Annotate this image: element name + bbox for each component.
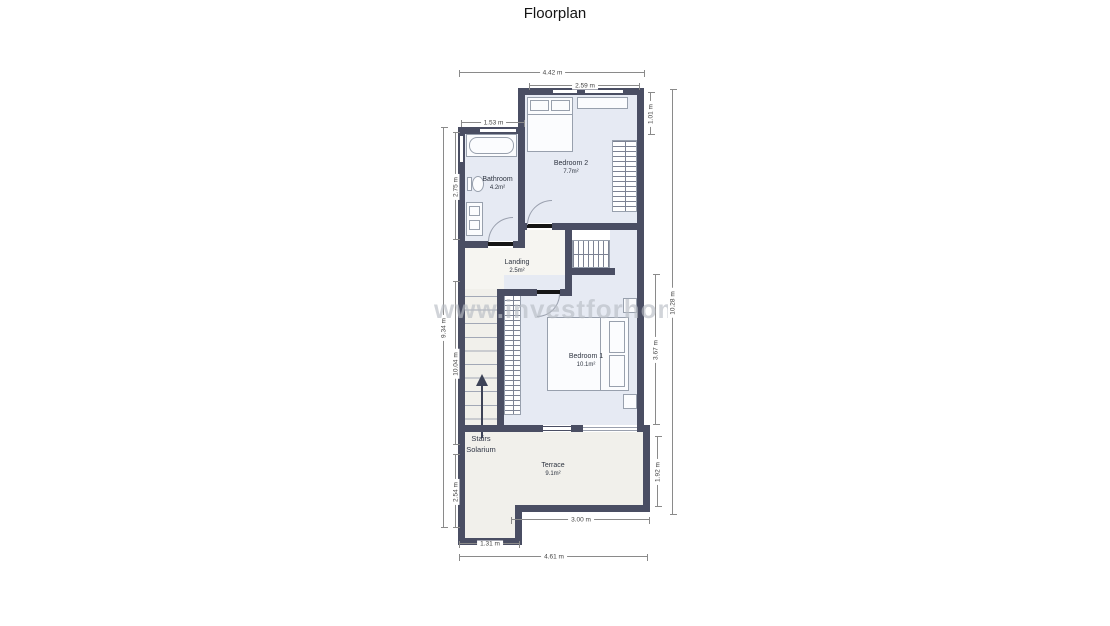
bedroom2-wardrobe [612,140,637,212]
bedroom2-pillow-1 [530,100,549,111]
wall-landing-right [565,230,572,296]
stairs-label-line1: Stairs [457,434,505,445]
room-area: 7.7m² [541,168,601,176]
dim-value: 4.61 m [541,554,567,561]
stairs-label: Stairs Solarium [457,434,505,455]
bedroom1-pillow-1 [609,321,625,353]
dim-top-bathroom: 1.53 m [462,122,525,123]
dim-right-bedroom2: 1.01 m [650,93,651,135]
wall-bedroom1-right [637,230,644,432]
terrace-sliding-door-track-1 [583,427,637,428]
room-area: 2.5m² [487,267,547,275]
terrace-sliding-door-track-2 [583,430,637,431]
bedroom2-label: Bedroom 2 7.7m² [541,159,601,177]
dim-value: 4.42 m [540,70,566,77]
wall-bathroom-bottom-left [458,241,488,248]
dim-value: 1.31 m [477,541,503,548]
dim-value: 3.67 m [653,337,660,363]
room-area: 9.1m² [523,470,583,478]
dim-left-bathroom: 2.75 m [455,133,456,240]
dim-value: 2.54 m [453,479,460,505]
vanity-sink-2 [469,220,480,230]
watermark-text: www.investforhome.com [434,294,668,324]
dim-value: 10.28 m [670,288,677,318]
room-name: Terrace [523,461,583,470]
page-title: Floorplan [0,5,1110,22]
dim-left-lower: 2.54 m [455,455,456,528]
wall-terrace-top-left [458,425,543,432]
wall-bedroom2-bottom-left [518,223,527,230]
room-area: 10.1m² [556,361,616,369]
dim-value: 10.04 m [453,349,460,379]
dim-top-overall: 4.42 m [460,72,645,73]
dim-value: 1.01 m [648,101,655,127]
stairs-label-line2: Solarium [457,445,505,456]
landing-label: Landing 2.5m² [487,258,547,276]
dim-bottom-terrace: 3.00 m [512,519,650,520]
floorplan-page: Floorplan [0,0,1110,626]
bedroom2-bed-foldline [527,114,573,115]
wall-terrace-right [643,425,650,512]
room-name: Bedroom 2 [541,159,601,168]
dim-right-overall: 10.28 m [672,90,673,515]
dim-value: 3.00 m [568,517,594,524]
bedroom1-label: Bedroom 1 10.1m² [556,352,616,370]
room-name: Bedroom 1 [556,352,616,361]
dim-value: 1.92 m [655,459,662,485]
landing-wardrobe [572,240,610,268]
bedroom1-terrace-window [543,426,571,431]
room-name: Landing [487,258,547,267]
dim-bottom-overall: 4.61 m [460,556,648,557]
bedroom2-window-left [553,89,577,94]
bathroom-window [480,128,516,133]
vanity-sink-1 [469,206,480,216]
wall-bedroom1-top [565,268,615,275]
bedroom2-dresser [577,97,628,109]
bedroom1-nightstand-2 [623,394,637,409]
wall-bedroom2-bottom-right [552,223,644,230]
wall-terrace-top-stub [571,425,583,432]
terrace-label: Terrace 9.1m² [523,461,583,479]
room-area: 4.2m² [470,184,525,192]
stairs-arrow-head [476,374,488,386]
wall-terrace-bottom [515,505,650,512]
bathroom-label: Bathroom 4.2m² [470,175,525,193]
landing-corridor-floor [525,230,565,248]
dim-value: 2.75 m [453,174,460,200]
room-name: Bathroom [470,175,525,184]
wall-bathroom-bottom-right [513,241,518,248]
wall-bedroom2-right [637,88,644,230]
dim-left-overall: 9.34 m [443,128,444,528]
bedroom2-window-right [585,89,623,94]
bedroom2-pillow-2 [551,100,570,111]
dim-bottom-left: 1.31 m [460,543,520,544]
bathroom-side-window [459,136,464,162]
dim-value: 2.59 m [572,83,598,90]
dim-right-terrace: 1.92 m [657,437,658,507]
bathroom-door-leaf [488,242,513,246]
bathtub-basin [469,137,514,154]
dim-value: 1.53 m [481,120,507,127]
dim-top-bedroom2: 2.59 m [530,85,640,86]
wardrobe-rail [573,254,609,255]
wardrobe-rail [625,141,626,211]
